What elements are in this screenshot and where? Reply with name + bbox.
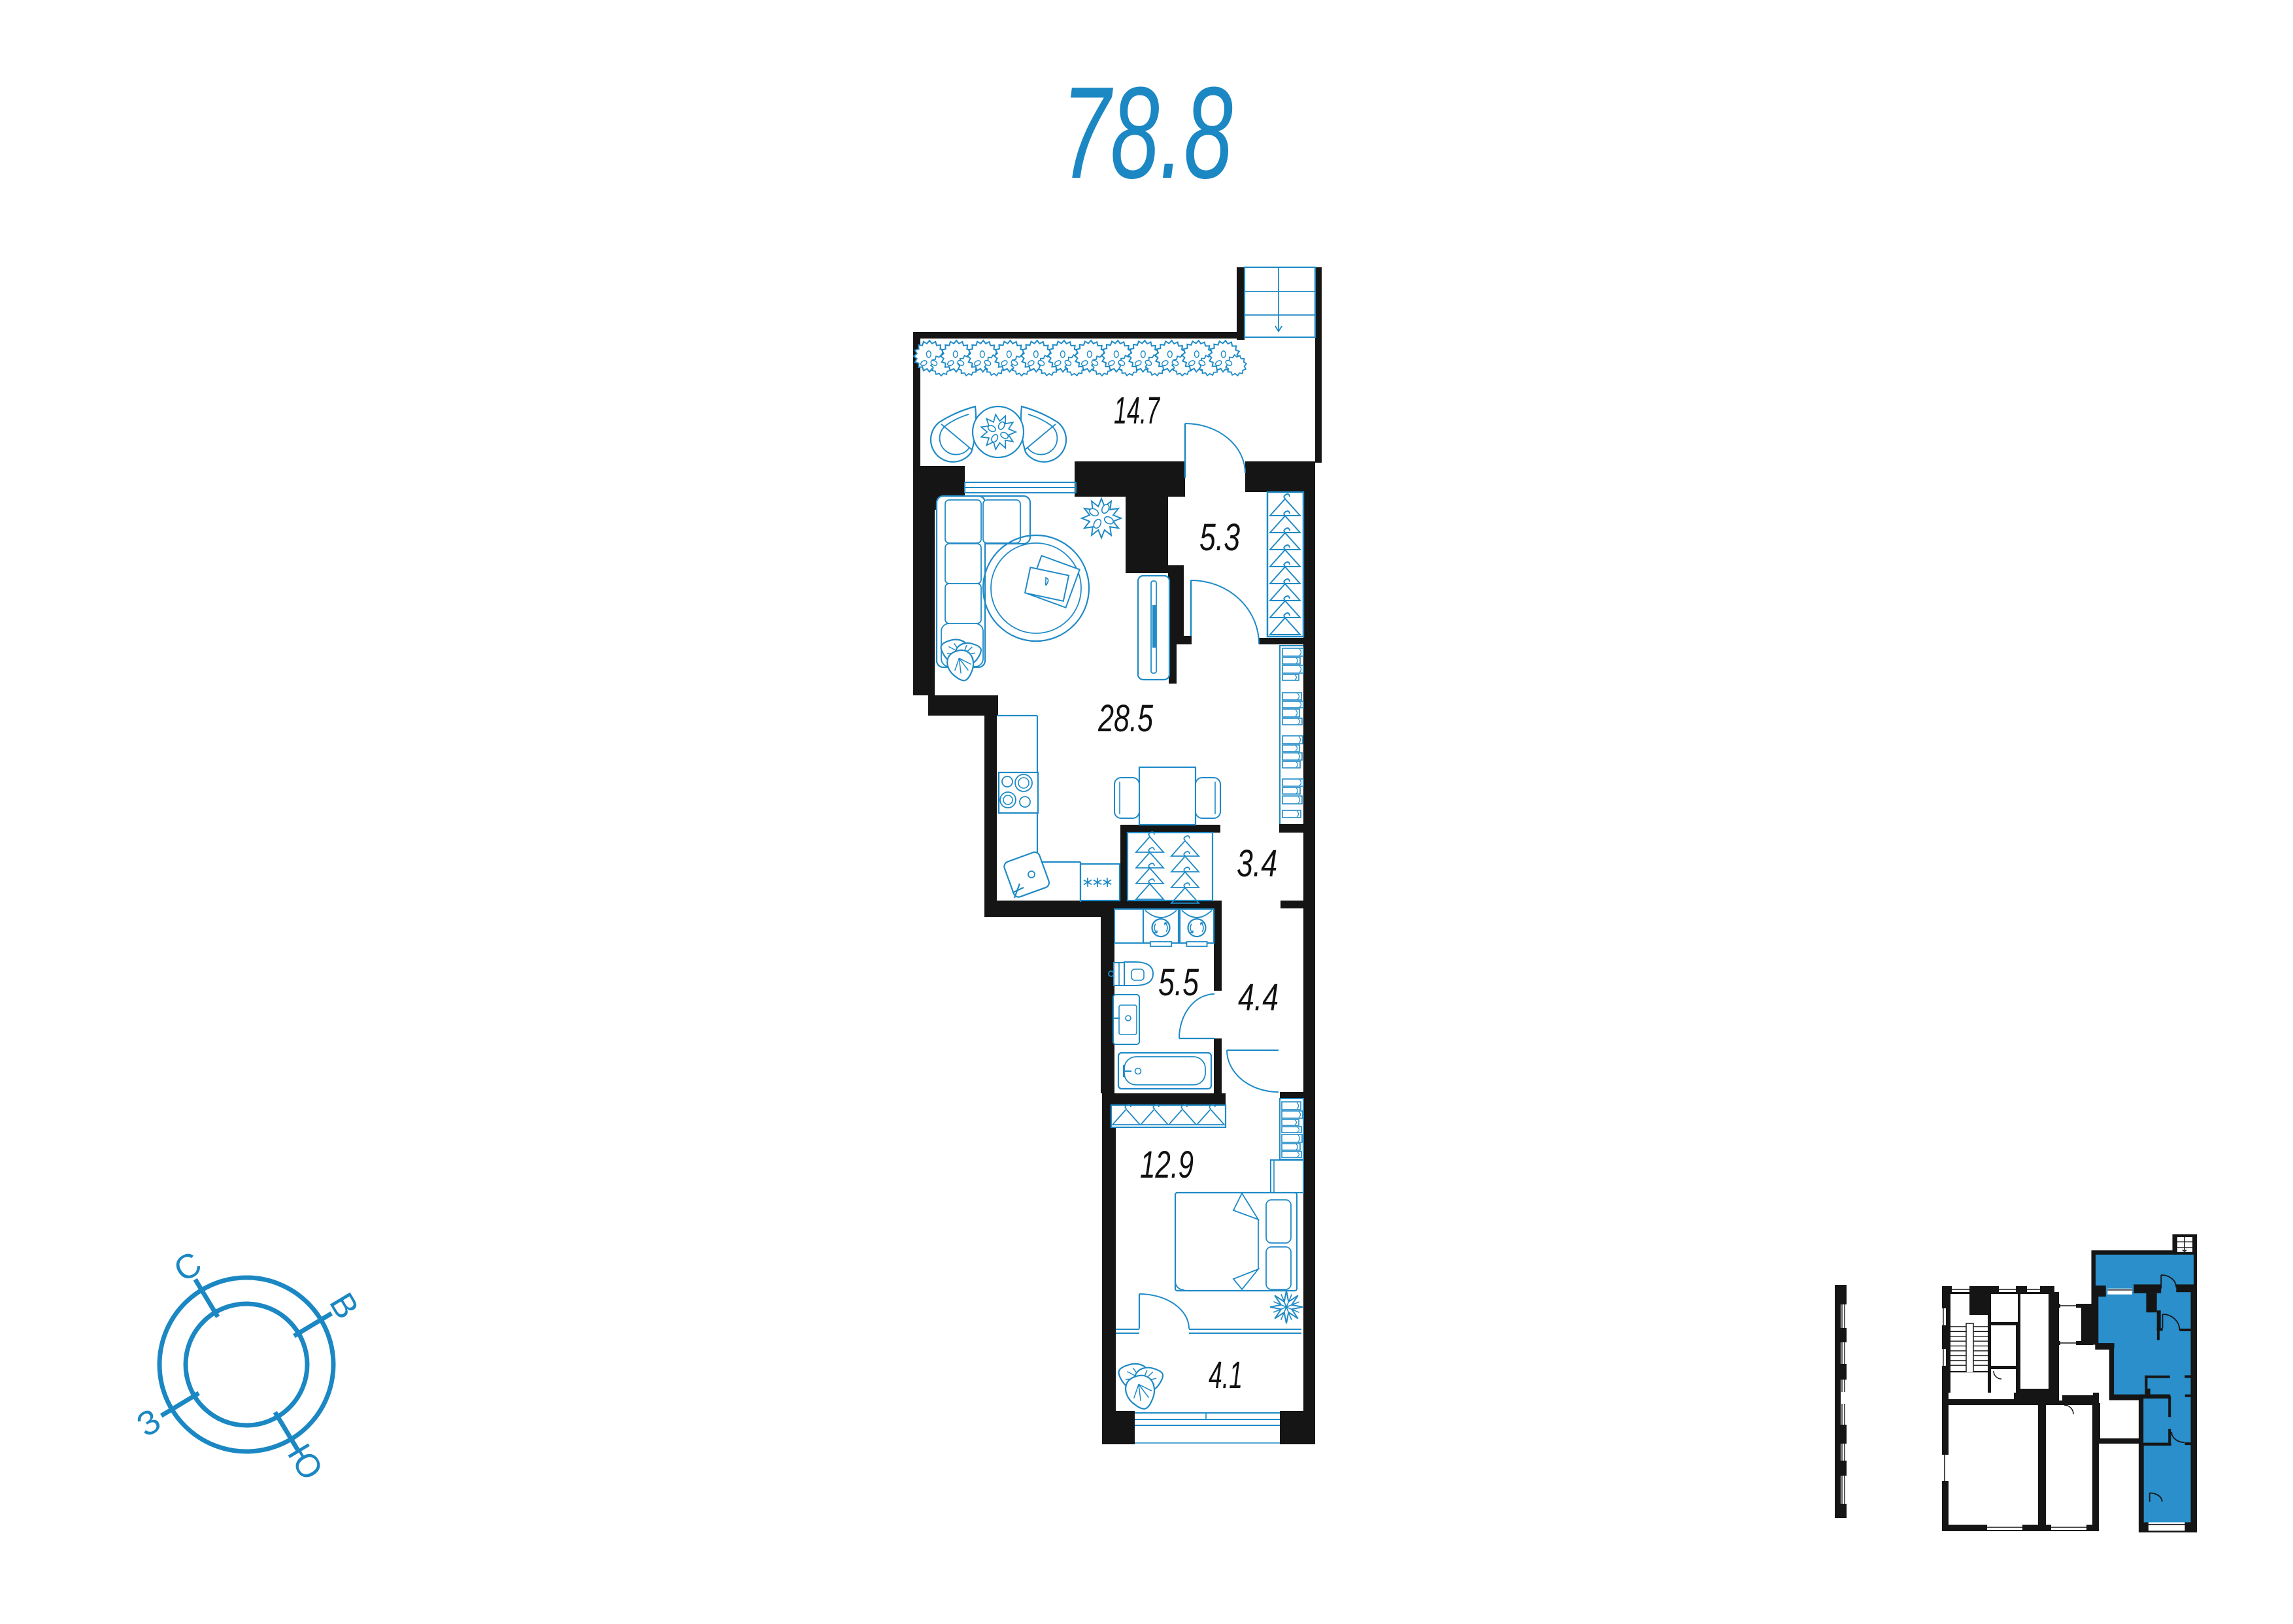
svg-text:78.8: 78.8 — [1062, 60, 1233, 206]
svg-text:14.7: 14.7 — [1114, 389, 1161, 432]
svg-text:12.9: 12.9 — [1140, 1144, 1194, 1186]
svg-text:28.5: 28.5 — [1097, 697, 1153, 740]
svg-text:4.1: 4.1 — [1209, 1354, 1243, 1397]
svg-text:3.4: 3.4 — [1237, 842, 1277, 885]
svg-text:4.4: 4.4 — [1238, 976, 1279, 1019]
svg-text:5.3: 5.3 — [1199, 516, 1240, 559]
svg-text:5.5: 5.5 — [1158, 961, 1199, 1004]
